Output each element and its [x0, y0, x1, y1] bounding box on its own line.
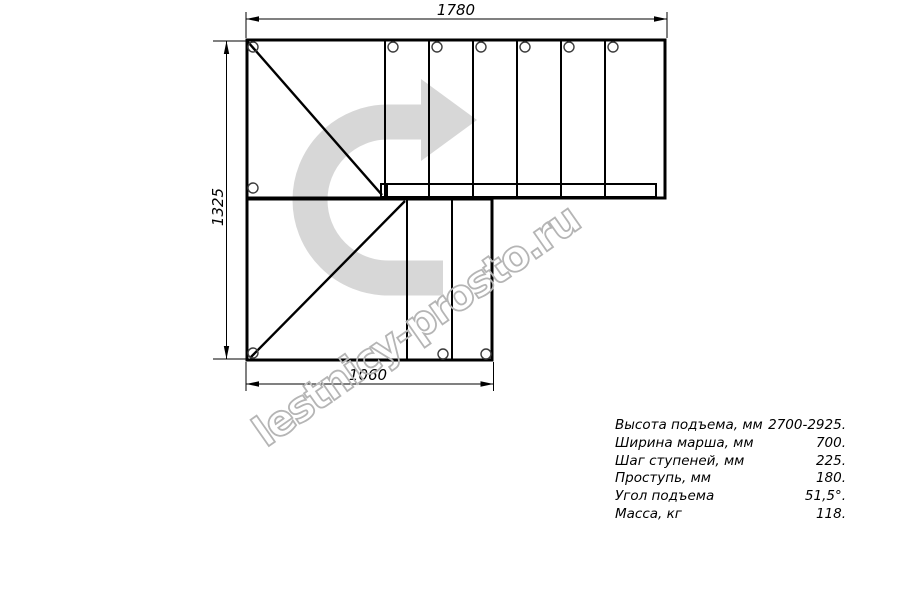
- spec-row: Шаг ступеней, мм 225.: [615, 453, 846, 471]
- dim-arrowhead: [246, 381, 259, 386]
- spec-row: Высота подъема, мм 2700-2925.: [615, 417, 846, 435]
- spec-label: Проступь, мм: [615, 470, 711, 488]
- specs-table: Высота подъема, мм 2700-2925. Ширина мар…: [615, 417, 846, 524]
- mount-hole: [438, 349, 448, 359]
- dimension-left-label: 1325: [209, 188, 227, 226]
- landing-beam-outline: [381, 184, 656, 197]
- mount-hole: [481, 349, 491, 359]
- spec-value: 118.: [816, 506, 846, 524]
- mount-hole: [248, 183, 258, 193]
- mount-hole: [388, 42, 398, 52]
- spec-value: 51,5°.: [805, 488, 846, 506]
- spec-row: Угол подъема 51,5°.: [615, 488, 846, 506]
- dimension-left: 1325: [209, 41, 246, 359]
- stair-plan-page: 1780 1325 1060 lestnicy-prosto.: [0, 0, 900, 600]
- watermark: lestnicy-prosto.ru: [244, 195, 588, 457]
- spec-value: 180.: [816, 470, 846, 488]
- dim-arrowhead: [654, 16, 667, 21]
- dimension-top-label: 1780: [437, 1, 475, 19]
- spec-label: Ширина марша, мм: [615, 435, 754, 453]
- spec-value: 225.: [816, 453, 846, 471]
- dim-arrowhead: [224, 346, 229, 359]
- spec-value: 2700-2925.: [768, 417, 846, 435]
- spec-row: Масса, кг 118.: [615, 506, 846, 524]
- spec-row: Ширина марша, мм 700.: [615, 435, 846, 453]
- dim-arrowhead: [481, 381, 494, 386]
- mount-hole: [608, 42, 618, 52]
- spec-label: Угол подъема: [615, 488, 714, 506]
- mount-hole: [564, 42, 574, 52]
- dimension-top: 1780: [246, 1, 667, 38]
- dim-arrowhead: [224, 41, 229, 54]
- landing-beam: [381, 184, 656, 197]
- mount-hole: [476, 42, 486, 52]
- spec-label: Шаг ступеней, мм: [615, 453, 744, 471]
- spec-label: Высота подъема, мм: [615, 417, 763, 435]
- dim-arrowhead: [246, 16, 259, 21]
- mount-hole: [520, 42, 530, 52]
- spec-row: Проступь, мм 180.: [615, 470, 846, 488]
- spec-label: Масса, кг: [615, 506, 682, 524]
- mount-hole: [432, 42, 442, 52]
- spec-value: 700.: [816, 435, 846, 453]
